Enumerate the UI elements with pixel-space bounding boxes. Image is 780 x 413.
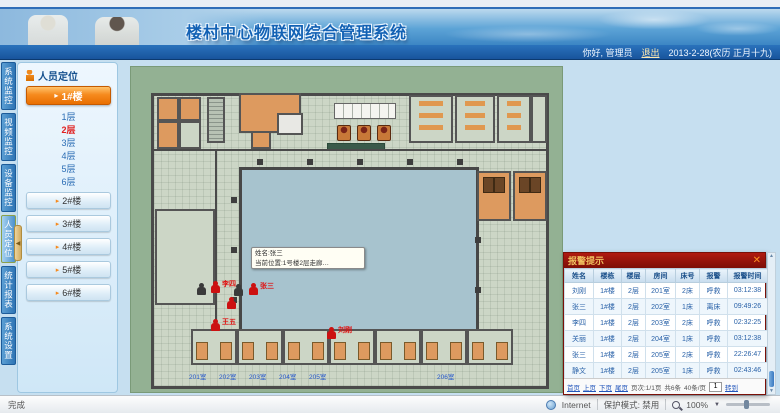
building-1-button[interactable]: ▸ 1#楼 (26, 86, 111, 105)
table-cell: 2层 (622, 283, 646, 299)
floor-item-4[interactable]: 4层 (18, 150, 119, 163)
arrow-right-icon: ▸ (56, 289, 60, 297)
table-cell: 刘刚 (565, 283, 594, 299)
plan-chair (377, 125, 391, 141)
table-cell: 张三 (565, 347, 594, 363)
person-label: 王五 (222, 317, 236, 327)
panel-collapse-handle[interactable]: ◀ (14, 225, 22, 261)
table-cell: 205室 (646, 347, 676, 363)
column-header: 楼栋 (594, 269, 622, 283)
building-button-3[interactable]: ▸3#楼 (26, 215, 111, 232)
magnifier-icon (672, 401, 680, 409)
alarm-title-bar: 报警提示 ✕ (564, 253, 765, 268)
room-number-label: 202室 (219, 371, 236, 381)
left-nav-tabs: 系统监控视频监控设备监控人员定位统计报表系统设置 (1, 62, 16, 368)
greeting-text: 你好, 管理员 (582, 46, 632, 59)
building-button-list: ▸2#楼▸3#楼▸4#楼▸5#楼▸6#楼 (26, 192, 111, 307)
plan-room (155, 209, 215, 305)
building-button-6[interactable]: ▸6#楼 (26, 284, 111, 301)
plan-column (257, 159, 263, 165)
person-icon (25, 70, 34, 81)
column-header: 报警 (700, 269, 728, 283)
pager-first[interactable]: 首页 (567, 382, 580, 392)
plan-room (157, 97, 179, 121)
nav-tab-6[interactable]: 系统设置 (1, 317, 16, 365)
table-cell: 02:43:46 (728, 363, 768, 379)
locator-marker-2[interactable] (234, 284, 243, 297)
column-header: 姓名 (565, 269, 594, 283)
alarm-title: 报警提示 (568, 254, 604, 267)
pager-total: 共6条 (664, 382, 681, 392)
building-label: 2#楼 (62, 194, 81, 207)
table-cell: 1#楼 (594, 363, 622, 379)
nav-tab-2[interactable]: 视频监控 (1, 113, 16, 161)
plan-column (475, 237, 481, 243)
date-text: 2013-2-28(农历 正月十九) (668, 46, 772, 59)
pager-prev[interactable]: 上页 (583, 382, 596, 392)
pager-goto-input[interactable] (709, 382, 722, 392)
plan-room (531, 95, 547, 143)
table-cell: 呼救 (700, 331, 728, 347)
alarm-pager: 首页 上页 下页 尾页 页次:1/1页 共6条 40条/页 转到 (564, 378, 765, 394)
header-banner: 楼村中心物联网综合管理系统 (0, 9, 780, 45)
arrow-right-icon: ▸ (56, 197, 60, 205)
room-number-label: 204室 (279, 371, 296, 381)
caret-down-icon[interactable]: ▼ (714, 402, 720, 408)
building-button-2[interactable]: ▸2#楼 (26, 192, 111, 209)
table-cell: 1#楼 (594, 283, 622, 299)
table-cell: 呼救 (700, 347, 728, 363)
table-cell: 呼救 (700, 283, 728, 299)
table-cell: 2床 (676, 315, 700, 331)
plan-bottom-room-1 (191, 329, 237, 365)
zoom-slider-knob[interactable] (744, 400, 749, 409)
alarm-table-header: 姓名楼栋楼层房间床号报警报警时间 (565, 269, 768, 283)
plan-chair (357, 125, 371, 141)
table-cell: 1#楼 (594, 347, 622, 363)
person-label: 刘刚 (338, 325, 352, 335)
table-cell: 22:26:47 (728, 347, 768, 363)
table-cell: 静文 (565, 363, 594, 379)
plan-column (357, 159, 363, 165)
pager-goto-button[interactable]: 转到 (725, 382, 738, 392)
table-cell: 呼救 (700, 315, 728, 331)
app-window: 楼村中心物联网综合管理系统 你好, 管理员 退出 2013-2-28(农历 正月… (0, 0, 780, 413)
plan-bottom-room-3 (283, 329, 329, 365)
table-cell: 1#楼 (594, 315, 622, 331)
arrow-right-icon: ▸ (56, 243, 60, 251)
table-cell: 02:32:25 (728, 315, 768, 331)
alarm-table: 姓名楼栋楼层房间床号报警报警时间 刘刚1#楼2层201室2床呼救03:12:38… (564, 268, 768, 379)
zone-label: Internet (562, 400, 591, 410)
pager-per-page: 40条/页 (684, 382, 706, 392)
panel-header: 人员定位 (25, 68, 78, 83)
table-cell: 2床 (676, 283, 700, 299)
table-cell: 离床 (700, 299, 728, 315)
table-cell: 205室 (646, 363, 676, 379)
plan-room (157, 121, 179, 149)
positioning-panel: 人员定位 ▸ 1#楼 1层2层3层4层5层6层 ▸2#楼▸3#楼▸4#楼▸5#楼… (17, 62, 118, 393)
column-header: 房间 (646, 269, 676, 283)
table-row: 关丽1#楼2层204室1床呼救03:12:38 (565, 331, 768, 347)
zoom-level[interactable]: 100% (686, 400, 708, 410)
zoom-slider[interactable] (726, 403, 770, 406)
plan-room (477, 171, 511, 221)
table-cell: 1床 (676, 331, 700, 347)
plan-bottom-room-7 (467, 329, 513, 365)
floor-item-6[interactable]: 6层 (18, 176, 119, 189)
pager-next[interactable]: 下页 (599, 382, 612, 392)
room-number-label: 203室 (249, 371, 266, 381)
plan-column (407, 159, 413, 165)
floor-item-3[interactable]: 3层 (18, 137, 119, 150)
browser-status-bar: 完成 Internet 保护模式: 禁用 100% ▼ (0, 395, 780, 413)
table-cell: 1#楼 (594, 331, 622, 347)
person-marker-3[interactable] (227, 297, 236, 310)
table-cell: 2层 (622, 331, 646, 347)
plan-room (277, 113, 303, 135)
plan-bottom-room-2 (237, 329, 283, 365)
user-bar: 你好, 管理员 退出 2013-2-28(农历 正月十九) (0, 45, 780, 60)
person-marker-2[interactable] (249, 283, 258, 296)
person-marker-5[interactable] (327, 327, 336, 340)
alarm-popup: 报警提示 ✕ 姓名楼栋楼层房间床号报警报警时间 刘刚1#楼2层201室2床呼救0… (563, 252, 766, 395)
plan-room (251, 131, 271, 149)
table-cell: 2层 (622, 363, 646, 379)
floor-list: 1层2层3层4层5层6层 (18, 111, 119, 189)
browser-top-strip (0, 0, 780, 9)
floor-item-1[interactable]: 1层 (18, 111, 119, 124)
person-marker-1[interactable] (211, 281, 220, 294)
collapse-icon: ◀ (16, 240, 21, 247)
nav-tab-5[interactable]: 统计报表 (1, 266, 16, 314)
table-cell: 2层 (622, 315, 646, 331)
plan-room (179, 97, 201, 121)
plan-column (231, 247, 237, 253)
protected-mode-label: 保护模式: 禁用 (604, 399, 660, 411)
person-marker-4[interactable] (211, 319, 220, 332)
person-tooltip: 姓名:张三 当前位置:1号楼2层走廊… (251, 247, 365, 269)
table-cell: 03:12:38 (728, 283, 768, 299)
table-row: 静文1#楼2层205室1床呼救02:43:46 (565, 363, 768, 379)
close-icon[interactable]: ✕ (753, 256, 761, 266)
column-header: 楼层 (622, 269, 646, 283)
logout-link[interactable]: 退出 (641, 46, 659, 59)
building-label: 6#楼 (62, 286, 81, 299)
plan-room (455, 95, 495, 143)
nav-tab-1[interactable]: 系统监控 (1, 62, 16, 110)
tooltip-line1: 姓名:张三 (255, 249, 361, 259)
table-cell: 关丽 (565, 331, 594, 347)
popup-scrollbar[interactable]: ▲ ▼ (767, 252, 776, 395)
table-cell: 203室 (646, 315, 676, 331)
arrow-right-icon: ▸ (56, 266, 60, 274)
table-cell: 2层 (622, 299, 646, 315)
floor-item-2[interactable]: 2层 (18, 124, 119, 137)
table-cell: 李四 (565, 315, 594, 331)
tooltip-line2: 当前位置:1号楼2层走廊… (255, 259, 361, 269)
table-cell: 1床 (676, 363, 700, 379)
plan-bottom-room-6 (421, 329, 467, 365)
floorplan-canvas[interactable]: 姓名:张三 当前位置:1号楼2层走廊… 李四张三王五刘刚201室202室203室… (130, 66, 563, 393)
plan-room (179, 121, 201, 149)
column-header: 报警时间 (728, 269, 768, 283)
floor-item-5[interactable]: 5层 (18, 163, 119, 176)
plan-column (475, 287, 481, 293)
building-label: 3#楼 (62, 217, 81, 230)
plan-room (497, 95, 531, 143)
building-1-label: 1#楼 (61, 88, 82, 103)
plan-column (231, 197, 237, 203)
table-cell: 1#楼 (594, 299, 622, 315)
separator (597, 399, 598, 410)
table-cell: 1床 (676, 299, 700, 315)
table-cell: 张三 (565, 299, 594, 315)
table-row: 张三1#楼2层205室2床呼救22:26:47 (565, 347, 768, 363)
building-button-4[interactable]: ▸4#楼 (26, 238, 111, 255)
table-cell: 2层 (622, 347, 646, 363)
nav-tab-3[interactable]: 设备监控 (1, 164, 16, 212)
plan-bottom-room-5 (375, 329, 421, 365)
arrow-right-icon: ▸ (54, 91, 58, 100)
globe-icon (546, 400, 556, 410)
table-cell: 呼救 (700, 363, 728, 379)
scroll-down-icon[interactable]: ▼ (768, 388, 775, 394)
building-button-5[interactable]: ▸5#楼 (26, 261, 111, 278)
table-row: 李四1#楼2层203室2床呼救02:32:25 (565, 315, 768, 331)
separator (665, 399, 666, 410)
pager-last[interactable]: 尾页 (615, 382, 628, 392)
table-row: 张三1#楼2层202室1床离床09:49:26 (565, 299, 768, 315)
room-number-label: 205室 (309, 371, 326, 381)
table-cell: 202室 (646, 299, 676, 315)
scroll-up-icon[interactable]: ▲ (768, 253, 775, 259)
room-number-label: 201室 (189, 371, 206, 381)
plan-room (409, 95, 453, 143)
person-label: 张三 (260, 281, 274, 291)
locator-marker-1[interactable] (197, 283, 206, 296)
arrow-right-icon: ▸ (56, 220, 60, 228)
page-title: 楼村中心物联网综合管理系统 (186, 19, 407, 43)
table-row: 刘刚1#楼2层201室2床呼救03:12:38 (565, 283, 768, 299)
plan-shelf (334, 103, 396, 119)
table-cell: 09:49:26 (728, 299, 768, 315)
table-cell: 201室 (646, 283, 676, 299)
pager-info: 页次:1/1页 (631, 382, 661, 392)
building-label: 4#楼 (62, 240, 81, 253)
plan-wall (153, 149, 549, 151)
plan-column (307, 159, 313, 165)
plan-wall (215, 149, 217, 327)
plan-column (457, 159, 463, 165)
status-text: 完成 (0, 399, 25, 411)
scrollbar-thumb[interactable] (769, 371, 774, 387)
table-cell: 2床 (676, 347, 700, 363)
building-label: 5#楼 (62, 263, 81, 276)
column-header: 床号 (676, 269, 700, 283)
panel-title: 人员定位 (38, 68, 78, 83)
table-cell: 03:12:38 (728, 331, 768, 347)
plan-chair (337, 125, 351, 141)
room-number-label: 206室 (437, 371, 454, 381)
plan-stairs (207, 97, 225, 143)
plan-room (513, 171, 547, 221)
table-cell: 204室 (646, 331, 676, 347)
